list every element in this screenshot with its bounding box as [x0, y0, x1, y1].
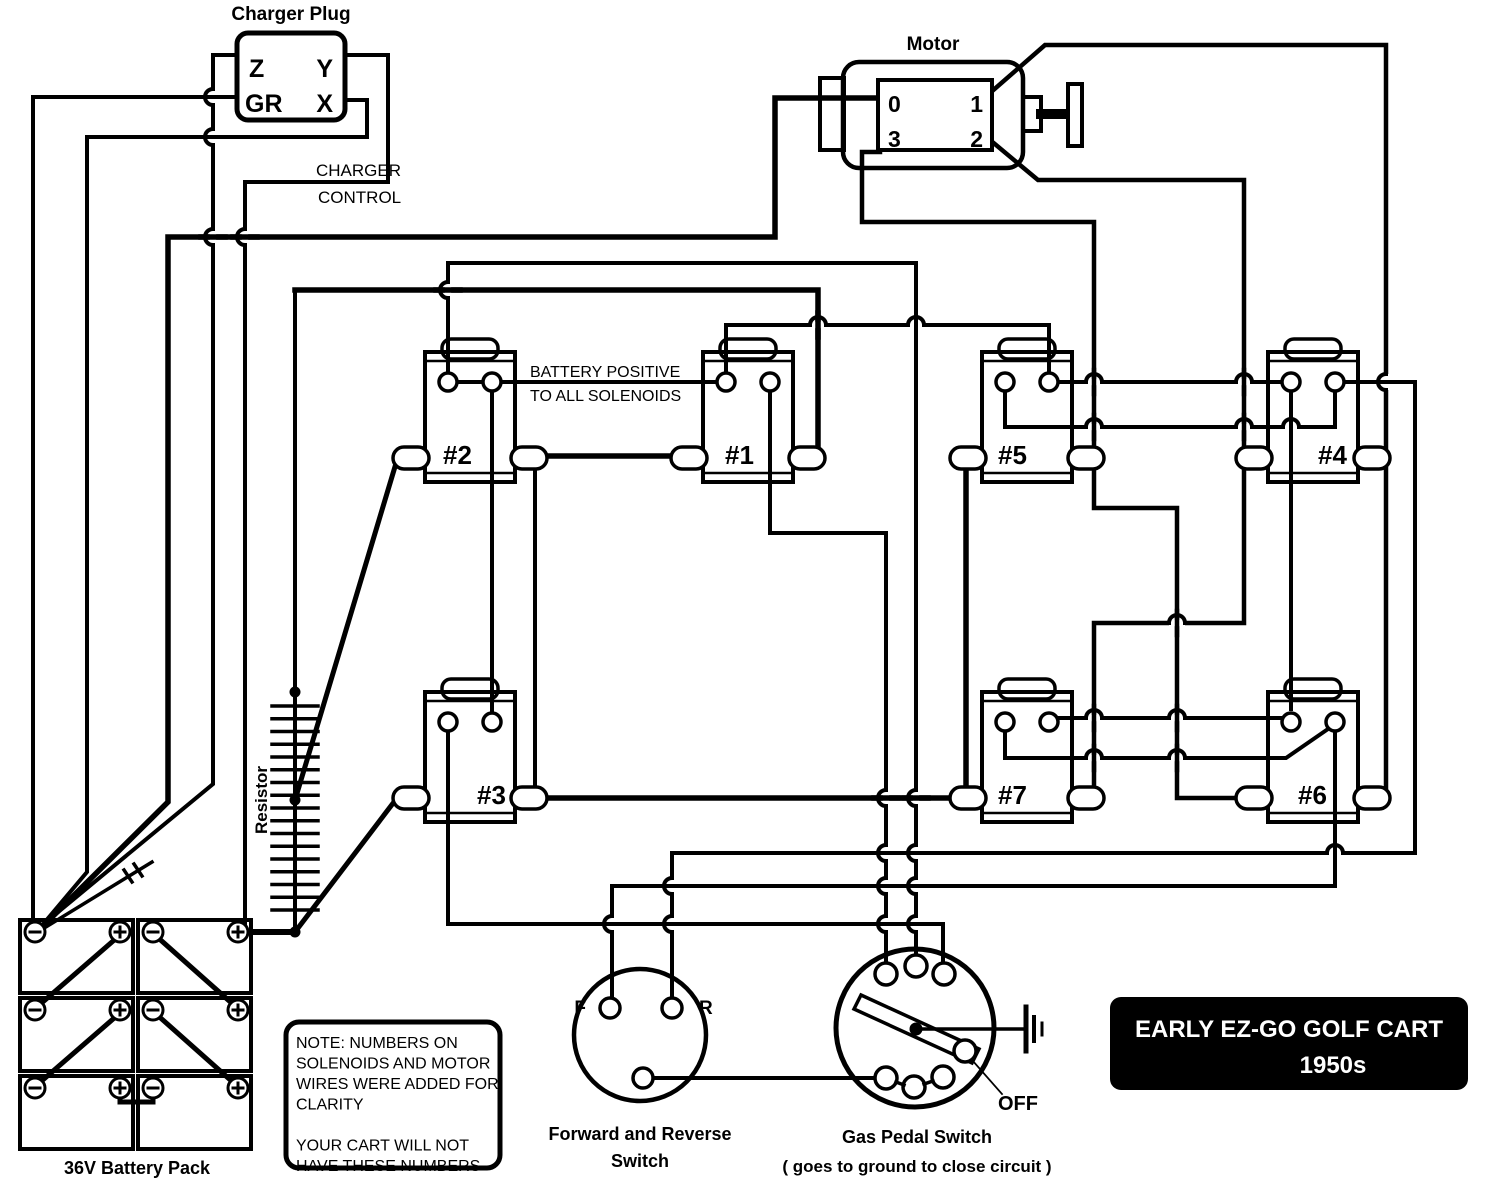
solenoid-left-lug	[671, 447, 707, 469]
solenoid-left-lug	[393, 447, 429, 469]
solenoid-label: #7	[998, 780, 1027, 810]
solenoid-label: #4	[1318, 440, 1347, 470]
note-line: YOUR CART WILL NOT	[296, 1138, 469, 1155]
battery-pack-label: 36V Battery Pack	[64, 1158, 211, 1178]
charger-plug: Charger Plug Z Y GR X CHARGER CONTROL	[231, 4, 401, 207]
motor-mount-bracket	[820, 78, 844, 150]
gas-off-label: OFF	[998, 1093, 1038, 1115]
note-line: HAVE THESE NUMBERS	[296, 1158, 480, 1175]
solenoid-small-terminal-left	[439, 373, 457, 391]
title-plate-bg	[1110, 997, 1468, 1090]
solenoid-small-terminal-right	[761, 373, 779, 391]
solenoid-right-lug	[511, 447, 547, 469]
gas-pedal-switch: OFF Gas Pedal Switch ( goes to ground to…	[782, 949, 1051, 1176]
wire-segment	[295, 798, 397, 932]
battery-cell-2	[138, 920, 251, 993]
solenoid-label: #3	[477, 780, 506, 810]
solenoid-left-lug	[1236, 787, 1272, 809]
motor-shaft-flange	[1068, 84, 1082, 146]
gas-bottom-terminal-2	[903, 1076, 925, 1098]
note-box: NOTE: NUMBERS ONSOLENOIDS AND MOTORWIRES…	[286, 1022, 500, 1175]
battery-cell-6	[138, 1076, 251, 1149]
solenoid-label: #5	[998, 440, 1027, 470]
solenoid-left-lug	[393, 787, 429, 809]
gas-top-terminal-3	[933, 963, 955, 985]
solenoid-small-terminal-right	[1040, 713, 1058, 731]
gas-caption-2: ( goes to ground to close circuit )	[782, 1157, 1051, 1176]
solenoid-small-terminal-left	[996, 713, 1014, 731]
battery-pack	[20, 920, 251, 1149]
solenoid-5: #3	[393, 679, 547, 822]
note-line: SOLENOIDS AND MOTOR	[296, 1056, 490, 1073]
solenoid-small-terminal-left	[1282, 373, 1300, 391]
gas-wiper-pivot	[910, 1023, 923, 1036]
solenoid-label: #2	[443, 440, 472, 470]
solenoid-small-terminal-right	[483, 713, 501, 731]
wire-segment	[295, 460, 397, 800]
note-line: NOTE: NUMBERS ON	[296, 1035, 458, 1052]
motor-pin-1: 1	[970, 91, 983, 117]
solenoid-right-lug	[511, 787, 547, 809]
gas-top-terminal-1	[875, 963, 897, 985]
solenoid-cap	[999, 339, 1055, 359]
battery-cell-3	[20, 998, 133, 1071]
gas-bottom-terminal-1	[875, 1067, 897, 1089]
wire-segment	[41, 98, 876, 928]
fr-caption-1: Forward and Reverse	[548, 1124, 731, 1144]
solenoid-small-terminal-right	[1326, 713, 1344, 731]
solenoid-3: #5	[950, 339, 1104, 482]
resistor: Resistor	[252, 687, 318, 938]
junction-dot	[290, 927, 301, 938]
motor-title: Motor	[907, 34, 960, 55]
solenoid-right-lug	[789, 447, 825, 469]
gas-caption-1: Gas Pedal Switch	[842, 1127, 992, 1147]
charger-pin-y: Y	[316, 55, 333, 83]
bus-note-line-1: BATTERY POSITIVE	[530, 364, 680, 381]
solenoid-small-terminal-left	[439, 713, 457, 731]
fr-common-terminal	[633, 1068, 653, 1088]
solenoid-small-terminal-right	[1326, 373, 1344, 391]
charger-plug-title: Charger Plug	[231, 4, 350, 25]
wire-segment	[39, 100, 367, 929]
diagram-page: Charger Plug Z Y GR X CHARGER CONTROL Mo…	[0, 0, 1500, 1200]
solenoid-right-lug	[1354, 787, 1390, 809]
title-plate-line-2: 1950s	[1300, 1052, 1367, 1079]
gas-bottom-terminal-3	[932, 1066, 954, 1088]
wire-segment	[990, 140, 1244, 787]
motor-pin-3: 3	[888, 126, 901, 152]
solenoid-cap	[1285, 339, 1341, 359]
title-plate-line-1: EARLY EZ-GO GOLF CART	[1135, 1016, 1443, 1043]
solenoid-cap	[442, 339, 498, 359]
motor-pin-2: 2	[970, 126, 983, 152]
title-plate: EARLY EZ-GO GOLF CART 1950s	[1110, 997, 1468, 1090]
solenoid-6: #7	[950, 679, 1104, 822]
wire-segment	[40, 55, 237, 927]
solenoid-right-lug	[1068, 447, 1104, 469]
solenoid-small-terminal-left	[1282, 713, 1300, 731]
junction-dot	[290, 795, 301, 806]
note-line: CLARITY	[296, 1097, 364, 1114]
wire-segment	[33, 97, 237, 928]
solenoid-cap	[999, 679, 1055, 699]
solenoid-small-terminal-right	[483, 373, 501, 391]
resistor-label: Resistor	[252, 766, 271, 834]
motor-pin-0: 0	[888, 91, 901, 117]
solenoid-label: #1	[725, 440, 754, 470]
wiring-diagram-canvas: Charger Plug Z Y GR X CHARGER CONTROL Mo…	[0, 0, 1500, 1200]
solenoid-small-terminal-left	[717, 373, 735, 391]
motor: Motor 0 1 3 2	[820, 34, 1082, 168]
wire-segment	[612, 731, 1335, 998]
note-line: WIRES WERE ADDED FOR	[296, 1076, 499, 1093]
charger-pin-z: Z	[249, 55, 264, 83]
solenoid-right-lug	[1354, 447, 1390, 469]
solenoid-label: #6	[1298, 780, 1327, 810]
fr-forward-label: F	[574, 998, 586, 1019]
solenoid-1: #2	[393, 339, 547, 482]
solenoid-7: #6	[1236, 679, 1390, 822]
solenoid-left-lug	[1236, 447, 1272, 469]
solenoid-2: #1	[671, 339, 825, 482]
solenoid-body	[982, 352, 1072, 482]
wire-segment	[990, 45, 1386, 787]
solenoid-cap	[442, 679, 498, 699]
fr-forward-terminal	[600, 998, 620, 1018]
bus-note-line-2: TO ALL SOLENOIDS	[530, 388, 681, 405]
fr-reverse-label: R	[699, 998, 713, 1019]
gas-top-terminal-2	[905, 955, 927, 977]
solenoid-cap	[1285, 679, 1341, 699]
solenoid-small-terminal-right	[1040, 373, 1058, 391]
wiring	[33, 45, 1415, 1102]
gas-wiper-tip	[954, 1040, 976, 1062]
solenoid-cap	[720, 339, 776, 359]
fr-caption-2: Switch	[611, 1151, 669, 1171]
fr-reverse-terminal	[662, 998, 682, 1018]
solenoid-right-lug	[1068, 787, 1104, 809]
solenoid-4: #4	[1236, 339, 1390, 482]
battery-cell-5	[20, 1076, 133, 1149]
forward-reverse-switch: F R Forward and Reverse Switch	[548, 969, 731, 1171]
wire-segment	[448, 731, 943, 964]
junction-dot	[290, 687, 301, 698]
charger-pin-x: X	[316, 90, 333, 118]
solenoid-small-terminal-left	[996, 373, 1014, 391]
solenoid-left-lug	[950, 787, 986, 809]
battery-cell-4	[138, 998, 251, 1071]
charger-control-label-2: CONTROL	[318, 188, 401, 207]
charger-pin-gr: GR	[245, 90, 283, 118]
charger-control-label-1: CHARGER	[316, 161, 401, 180]
wire-segment	[770, 391, 886, 964]
battery-cell-1	[20, 920, 133, 993]
solenoid-left-lug	[950, 447, 986, 469]
